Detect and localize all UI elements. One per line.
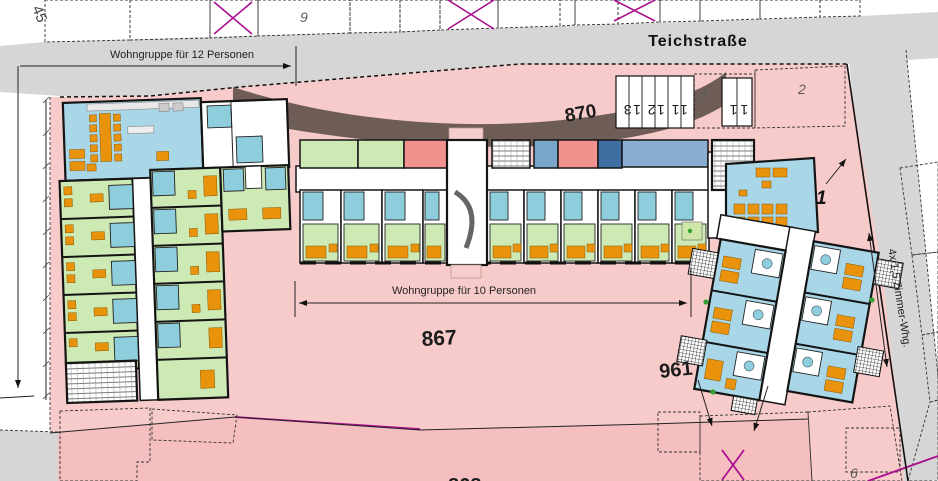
room-blue-1 (534, 140, 558, 168)
parcel-45-label: 45 (28, 3, 50, 25)
entry-canopy-north (449, 128, 483, 140)
parcel-1-label: 1 (700, 87, 708, 103)
bedroom-units-row (300, 190, 709, 263)
corridor-central (296, 166, 710, 192)
label-group12: Wohngruppe für 12 Personen (110, 49, 254, 61)
garage-house-numbers: 11 12 13 (622, 102, 687, 118)
central-wing (296, 128, 710, 278)
parcel-961-label: 961 (658, 358, 693, 383)
room-green-2 (358, 140, 404, 168)
pair-house-numbers: 11 (726, 102, 749, 118)
parcel-868-label: 868 (448, 475, 481, 481)
parcel-6-label: 6 (850, 465, 858, 481)
site-plan: 11 12 13 1 11 (0, 0, 938, 481)
road-bottom-left (0, 430, 58, 481)
room-blue-dark (598, 140, 622, 168)
room-green-1 (300, 140, 358, 168)
street-name: Teichstraße (648, 33, 748, 50)
building-1-label: 1 (816, 188, 827, 209)
stairwell-west (66, 361, 137, 403)
room-red-2 (558, 140, 598, 168)
entry-canopy-south (451, 265, 481, 278)
stair-central (492, 140, 530, 168)
parcel-9-label: 9 (300, 9, 308, 25)
label-group10: Wohngruppe für 10 Personen (392, 285, 536, 297)
room-blue-2 (622, 140, 708, 167)
room-red-1 (404, 140, 447, 168)
parcel-867-label: 867 (421, 326, 457, 351)
parcel-2-label: 2 (797, 81, 806, 97)
dimension-west (0, 66, 49, 400)
